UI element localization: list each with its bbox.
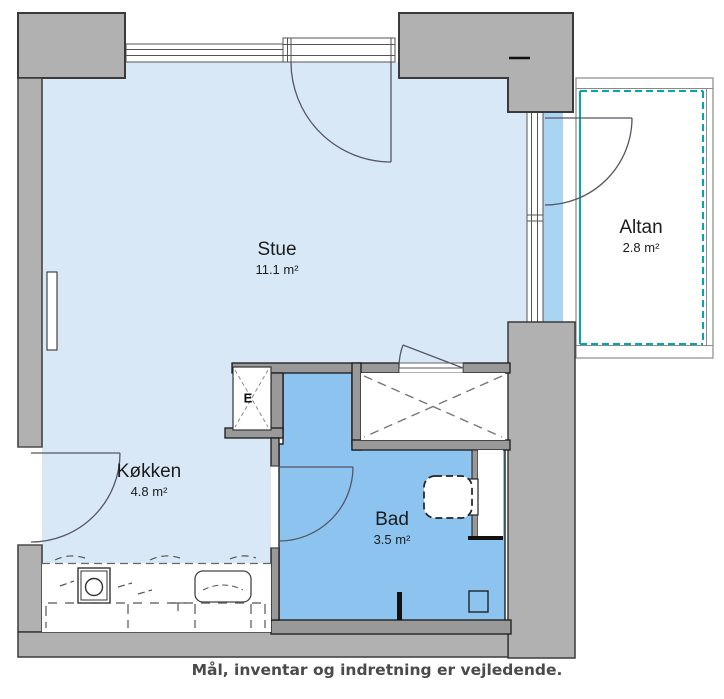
wardrobe-symbol bbox=[361, 373, 505, 440]
disclaimer-caption: Mål, inventar og indretning er vejledend… bbox=[30, 661, 724, 679]
room-name: Bad bbox=[374, 508, 411, 532]
sink-icon bbox=[195, 571, 251, 602]
room-label-bad: Bad 3.5 m² bbox=[374, 508, 411, 548]
shower-partition bbox=[397, 592, 402, 620]
radiator-niche bbox=[47, 272, 57, 350]
room-name: Altan bbox=[619, 216, 662, 240]
entry-door-glazing bbox=[283, 38, 395, 62]
toilet-icon bbox=[424, 476, 478, 518]
balcony-threshold-strip bbox=[543, 112, 576, 322]
kitchen-counter bbox=[42, 556, 271, 632]
room-area: 2.8 m² bbox=[619, 240, 662, 256]
floor-plan: Stue 11.1 m² Køkken 4.8 m² Bad 3.5 m² Al… bbox=[0, 0, 724, 699]
plan-linework bbox=[0, 0, 724, 699]
room-label-stue: Stue 11.1 m² bbox=[255, 238, 298, 278]
window-balcony-wall bbox=[527, 112, 543, 322]
washing-machine-icon bbox=[78, 568, 110, 603]
room-area: 4.8 m² bbox=[117, 484, 181, 500]
window-top bbox=[126, 44, 283, 62]
room-name: Stue bbox=[255, 238, 298, 262]
room-label-koekken: Køkken 4.8 m² bbox=[117, 460, 181, 500]
room-area: 3.5 m² bbox=[374, 532, 411, 548]
room-area: 11.1 m² bbox=[255, 262, 298, 278]
electrical-closet-label: E bbox=[244, 391, 253, 406]
room-name: Køkken bbox=[117, 460, 181, 484]
bath-niche bbox=[478, 450, 503, 536]
niche-end-wall bbox=[468, 536, 503, 540]
room-label-altan: Altan 2.8 m² bbox=[619, 216, 662, 256]
